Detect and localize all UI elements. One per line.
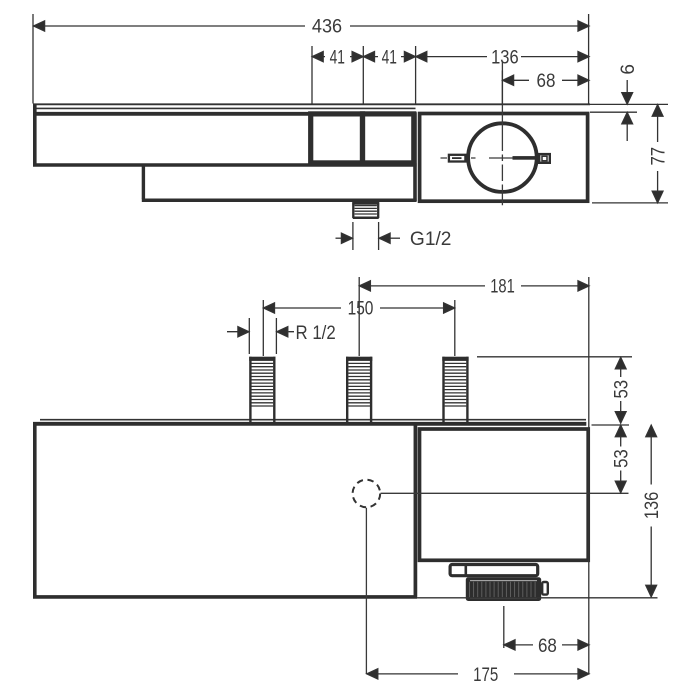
- svg-text:41: 41: [330, 47, 345, 68]
- svg-text:53: 53: [611, 449, 632, 468]
- svg-text:53: 53: [611, 380, 632, 399]
- svg-text:R 1/2: R 1/2: [296, 323, 336, 344]
- svg-text:77: 77: [648, 147, 669, 166]
- svg-text:181: 181: [490, 277, 515, 298]
- svg-text:150: 150: [348, 299, 374, 320]
- svg-text:175: 175: [473, 665, 498, 686]
- svg-text:41: 41: [382, 47, 397, 68]
- svg-text:6: 6: [618, 64, 639, 75]
- svg-text:68: 68: [537, 71, 556, 92]
- svg-text:136: 136: [491, 47, 519, 68]
- svg-text:436: 436: [312, 17, 342, 38]
- svg-text:68: 68: [538, 636, 557, 657]
- svg-text:G1/2: G1/2: [410, 229, 452, 250]
- svg-text:136: 136: [642, 492, 663, 519]
